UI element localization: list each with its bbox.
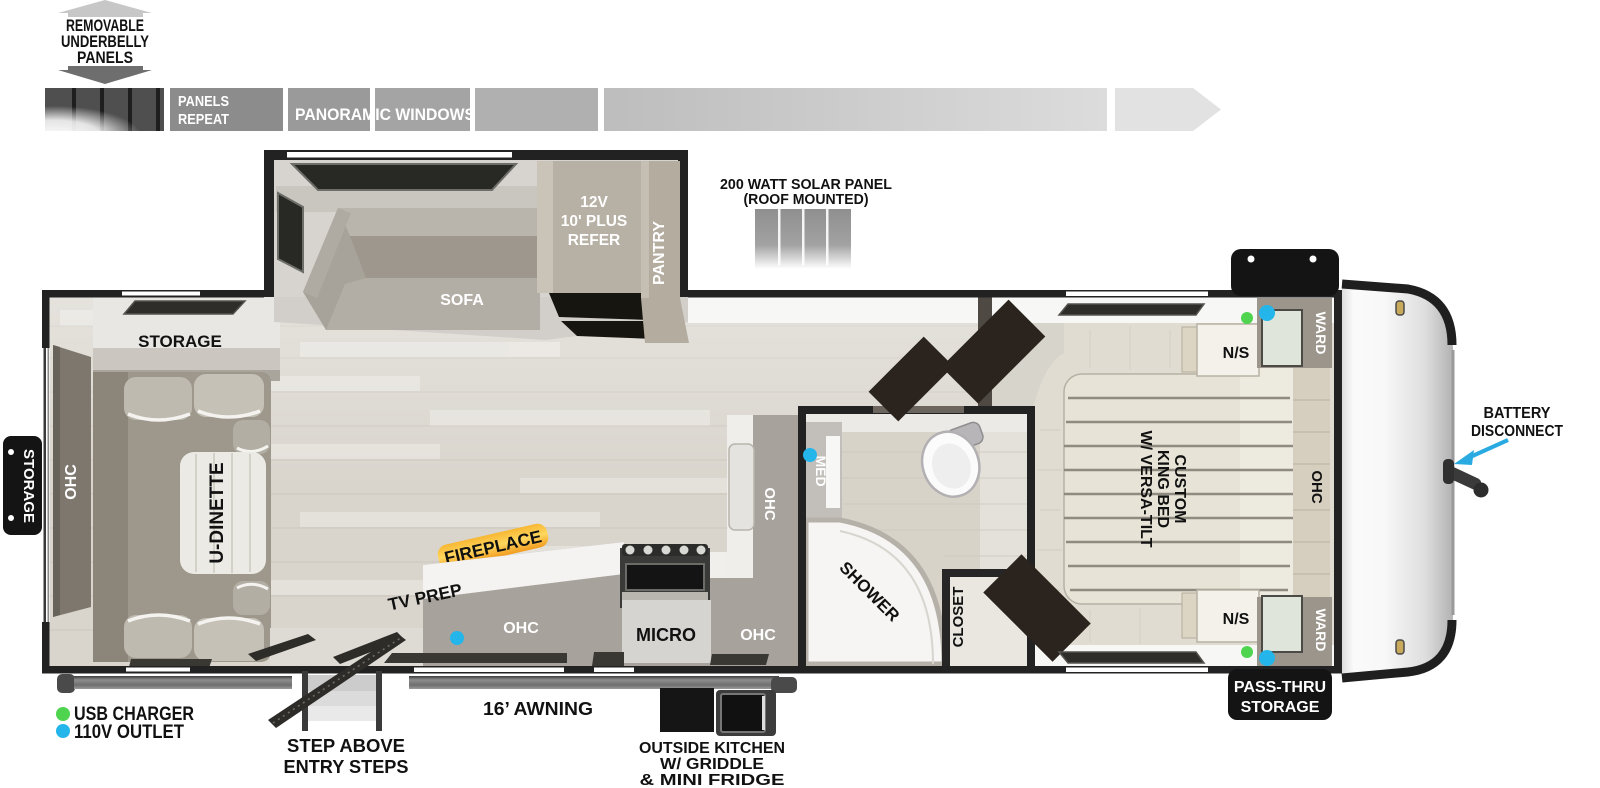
svg-text:REFER: REFER [568,232,621,249]
svg-text:110V OUTLET: 110V OUTLET [74,722,184,743]
svg-text:OHC: OHC [740,627,776,644]
svg-text:PANELS: PANELS [178,93,229,110]
svg-text:200 WATT SOLAR PANEL: 200 WATT SOLAR PANEL [720,177,892,193]
svg-text:CUSTOM: CUSTOM [1171,454,1188,523]
svg-text:OHC: OHC [503,620,539,637]
svg-text:ENTRY STEPS: ENTRY STEPS [284,757,409,777]
svg-text:16’ AWNING: 16’ AWNING [483,699,593,719]
svg-text:OHC: OHC [63,464,80,500]
svg-text:PANORAMIC WINDOWS: PANORAMIC WINDOWS [295,106,475,124]
svg-text:WARD: WARD [1313,312,1329,355]
svg-text:W/ VERSA-TILT: W/ VERSA-TILT [1137,430,1154,547]
svg-text:OHC: OHC [761,487,778,521]
svg-text:SOFA: SOFA [440,292,484,309]
svg-text:STORAGE: STORAGE [20,449,37,523]
svg-text:PASS-THRU: PASS-THRU [1234,679,1326,696]
svg-text:PANELS: PANELS [77,48,133,67]
svg-text:N/S: N/S [1223,611,1250,628]
svg-text:CLOSET: CLOSET [950,587,967,648]
svg-text:KING BED: KING BED [1154,450,1171,528]
svg-text:& MINI FRIDGE: & MINI FRIDGE [640,772,785,788]
svg-text:REPEAT: REPEAT [178,111,229,128]
svg-text:STORAGE: STORAGE [1241,699,1320,716]
svg-text:PANTRY: PANTRY [651,221,668,285]
svg-text:DISCONNECT: DISCONNECT [1471,423,1563,440]
svg-text:OUTSIDE KITCHEN: OUTSIDE KITCHEN [639,740,785,757]
svg-text:WARD: WARD [1313,609,1329,652]
svg-text:MED: MED [813,455,829,486]
svg-text:BATTERY: BATTERY [1484,405,1552,422]
svg-text:(ROOF MOUNTED): (ROOF MOUNTED) [744,192,869,208]
svg-text:U-DINETTE: U-DINETTE [207,462,228,563]
svg-text:W/ GRIDDLE: W/ GRIDDLE [660,756,764,773]
svg-text:MICRO: MICRO [636,625,696,645]
svg-text:N/S: N/S [1223,345,1250,362]
svg-text:10' PLUS: 10' PLUS [561,213,628,230]
svg-text:STEP ABOVE: STEP ABOVE [287,736,405,756]
svg-text:STORAGE: STORAGE [138,332,222,351]
svg-text:12V: 12V [580,194,608,211]
svg-text:OHC: OHC [1308,470,1325,504]
